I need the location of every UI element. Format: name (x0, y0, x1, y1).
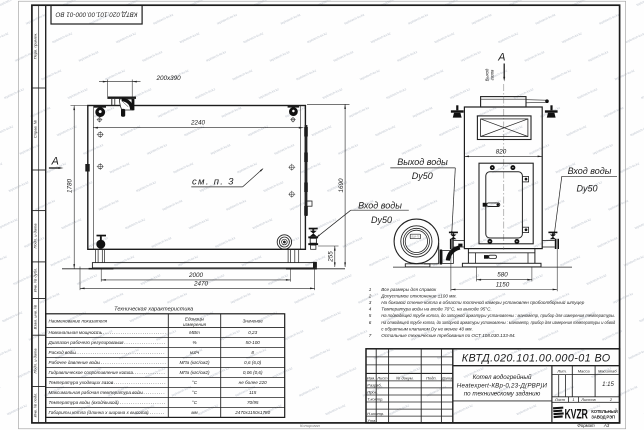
svg-text:мм: мм (191, 410, 198, 415)
svg-text:580: 580 (497, 272, 508, 279)
svg-text:м3/ч: м3/ч (190, 350, 200, 355)
svg-text:измерения: измерения (183, 322, 207, 327)
svg-text:КОТЕЛЬНЫЙ: КОТЕЛЬНЫЙ (591, 409, 617, 414)
svg-text:1: 1 (369, 287, 372, 292)
svg-text:1690: 1690 (338, 178, 345, 193)
svg-text:Подп. и дата: Подп. и дата (33, 348, 38, 374)
svg-text:Вход воды: Вход воды (358, 200, 402, 210)
svg-text:Утв.: Утв. (367, 418, 376, 423)
svg-text:70/95: 70/95 (247, 400, 259, 405)
svg-text:2470: 2470 (193, 280, 209, 287)
svg-text:1:15: 1:15 (602, 382, 614, 388)
svg-text:Температура воды на входе 70°: Температура воды на входе 70°С, на выход… (381, 307, 492, 312)
svg-text:Справ. №: Справ. № (33, 119, 38, 138)
svg-text:см. п. 3: см. п. 3 (192, 177, 235, 188)
svg-text:Dy50: Dy50 (371, 215, 392, 225)
svg-text:Пров.: Пров. (367, 390, 378, 395)
svg-text:Дата: Дата (441, 375, 453, 380)
svg-text:Техническая характеристика: Техническая характеристика (114, 307, 193, 313)
svg-text:№ докум.: № докум. (396, 375, 414, 380)
svg-text:Значение: Значение (243, 319, 264, 324)
svg-text:Лит.: Лит. (556, 368, 566, 373)
svg-text:0,06 (0,6): 0,06 (0,6) (243, 370, 263, 375)
svg-text:МПа (кгс/см2): МПа (кгс/см2) (179, 370, 209, 375)
svg-text:Номинальная мощность: Номинальная мощность (49, 330, 103, 335)
svg-text:Подп. и дата: Подп. и дата (33, 223, 38, 249)
svg-text:200х390: 200х390 (156, 75, 182, 82)
svg-text:Heatexpert-КВр-0,23-Д(РВР)И: Heatexpert-КВр-0,23-Д(РВР)И (457, 382, 548, 389)
svg-text:Листов: Листов (580, 397, 596, 402)
svg-text:Масштаб: Масштаб (598, 368, 617, 373)
svg-text:по техническому заданию: по техническому заданию (464, 390, 541, 397)
svg-text:Допустимое отклонение ±100 мм: Допустимое отклонение ±100 мм. (380, 293, 457, 298)
svg-text:2470х1150х1780: 2470х1150х1780 (234, 410, 270, 415)
svg-text:1: 1 (572, 397, 574, 402)
svg-text:Инв. № дубл.: Инв. № дубл. (33, 268, 38, 293)
svg-text:2: 2 (368, 293, 372, 298)
svg-text:ЗАВОД РЭП: ЗАВОД РЭП (591, 414, 615, 419)
svg-text:Котел водогрейный: Котел водогрейный (473, 374, 532, 381)
svg-text:Единицы: Единицы (185, 317, 205, 322)
svg-text:°С: °С (192, 390, 198, 395)
svg-text:Перв. примен.: Перв. примен. (33, 33, 38, 60)
svg-text:Диапазон рабочего регулировани: Диапазон рабочего регулирования (48, 340, 125, 345)
svg-text:А: А (497, 51, 505, 63)
svg-text:0,6 (6,0): 0,6 (6,0) (244, 360, 262, 365)
svg-text:°С: °С (192, 400, 198, 405)
svg-text:50-100: 50-100 (246, 340, 261, 345)
svg-text:4: 4 (369, 307, 372, 312)
svg-text:Габариты котла (длинна х ширин: Габариты котла (длинна х ширина х высота… (49, 410, 150, 415)
svg-text:Подп.: Подп. (426, 375, 437, 380)
svg-text:не более 220: не более 220 (239, 380, 267, 385)
svg-text:Все размеры для справок: Все размеры для справок (381, 287, 437, 292)
svg-text:7: 7 (369, 333, 372, 338)
svg-text:А: А (51, 156, 59, 168)
svg-text:газов: газов (490, 69, 495, 80)
svg-text:°С: °С (192, 380, 198, 385)
svg-text:На боковой стенке котла в обла: На боковой стенке котла в области топочн… (381, 299, 585, 305)
svg-text:МПа (кгс/см2): МПа (кгс/см2) (179, 360, 209, 365)
svg-text:КВТД.020.101.00.000-01 ВО: КВТД.020.101.00.000-01 ВО (55, 11, 137, 18)
svg-text:%: % (192, 340, 196, 345)
svg-text:Наименование показателя: Наименование показателя (49, 319, 108, 324)
svg-text:Масса: Масса (578, 368, 591, 373)
svg-text:255: 255 (327, 251, 334, 263)
svg-text:Лист: Лист (554, 397, 566, 402)
svg-text:А3: А3 (603, 423, 610, 428)
svg-text:Инв. № подл.: Инв. № подл. (33, 393, 38, 418)
svg-text:Температура воды (вход/выход): Температура воды (вход/выход) (49, 400, 120, 405)
svg-text:Вход воды: Вход воды (568, 166, 612, 176)
svg-text:Т.контр.: Т.контр. (367, 397, 383, 402)
svg-text:МВт: МВт (189, 330, 200, 335)
svg-text:Выход воды: Выход воды (397, 157, 448, 167)
svg-text:Температура уходящих газов: Температура уходящих газов (49, 380, 114, 385)
svg-text:Формат: Формат (577, 423, 595, 428)
svg-text:820: 820 (496, 148, 507, 155)
svg-text:Изм.: Изм. (367, 375, 376, 380)
svg-text:5: 5 (369, 313, 372, 318)
svg-text:Лист: Лист (376, 375, 388, 380)
svg-text:с обратным клапаном Dу не мен: с обратным клапаном Dу не менее 40 мм. (381, 326, 473, 331)
svg-text:Копировал: Копировал (300, 423, 321, 428)
svg-text:Н.контр.: Н.контр. (367, 411, 384, 416)
svg-text:На отводящей трубе котла, до з: На отводящей трубе котла, до запорной ар… (381, 319, 615, 325)
svg-text:Dy50: Dy50 (576, 184, 597, 194)
svg-text:8: 8 (251, 350, 254, 355)
svg-text:На подводящей трубе котла, д: На подводящей трубе котла, до запорной а… (381, 312, 615, 318)
svg-text:ВЦ4-75: ВЦ4-75 (411, 236, 420, 239)
svg-text:Разраб.: Разраб. (367, 383, 381, 388)
svg-text:Гидравлическое сопротивление к: Гидравлическое сопротивление котла (49, 370, 134, 375)
svg-text:KVZR: KVZR (565, 405, 589, 422)
svg-text:Остальные технические требован: Остальные технические требования по ОСТ … (381, 333, 516, 338)
svg-text:1780: 1780 (67, 179, 74, 194)
svg-text:Dy50: Dy50 (412, 171, 433, 181)
svg-text:115: 115 (249, 390, 257, 395)
svg-text:2000: 2000 (188, 272, 204, 279)
svg-text:КВТД.020.101.00.000-01 ВО: КВТД.020.101.00.000-01 ВО (462, 353, 611, 365)
svg-text:2240: 2240 (190, 120, 206, 127)
svg-text:Максимальная рабочая температу: Максимальная рабочая температура воды (49, 390, 144, 395)
svg-text:3: 3 (369, 300, 372, 305)
svg-text:1150: 1150 (496, 282, 510, 289)
svg-text:6: 6 (369, 320, 372, 325)
svg-text:0,23: 0,23 (248, 330, 257, 335)
svg-text:Расход воды: Расход воды (49, 350, 77, 355)
svg-text:Взам. инв. №: Взам. инв. № (33, 304, 38, 329)
svg-text:Рабочее давление воды: Рабочее давление воды (49, 360, 101, 365)
